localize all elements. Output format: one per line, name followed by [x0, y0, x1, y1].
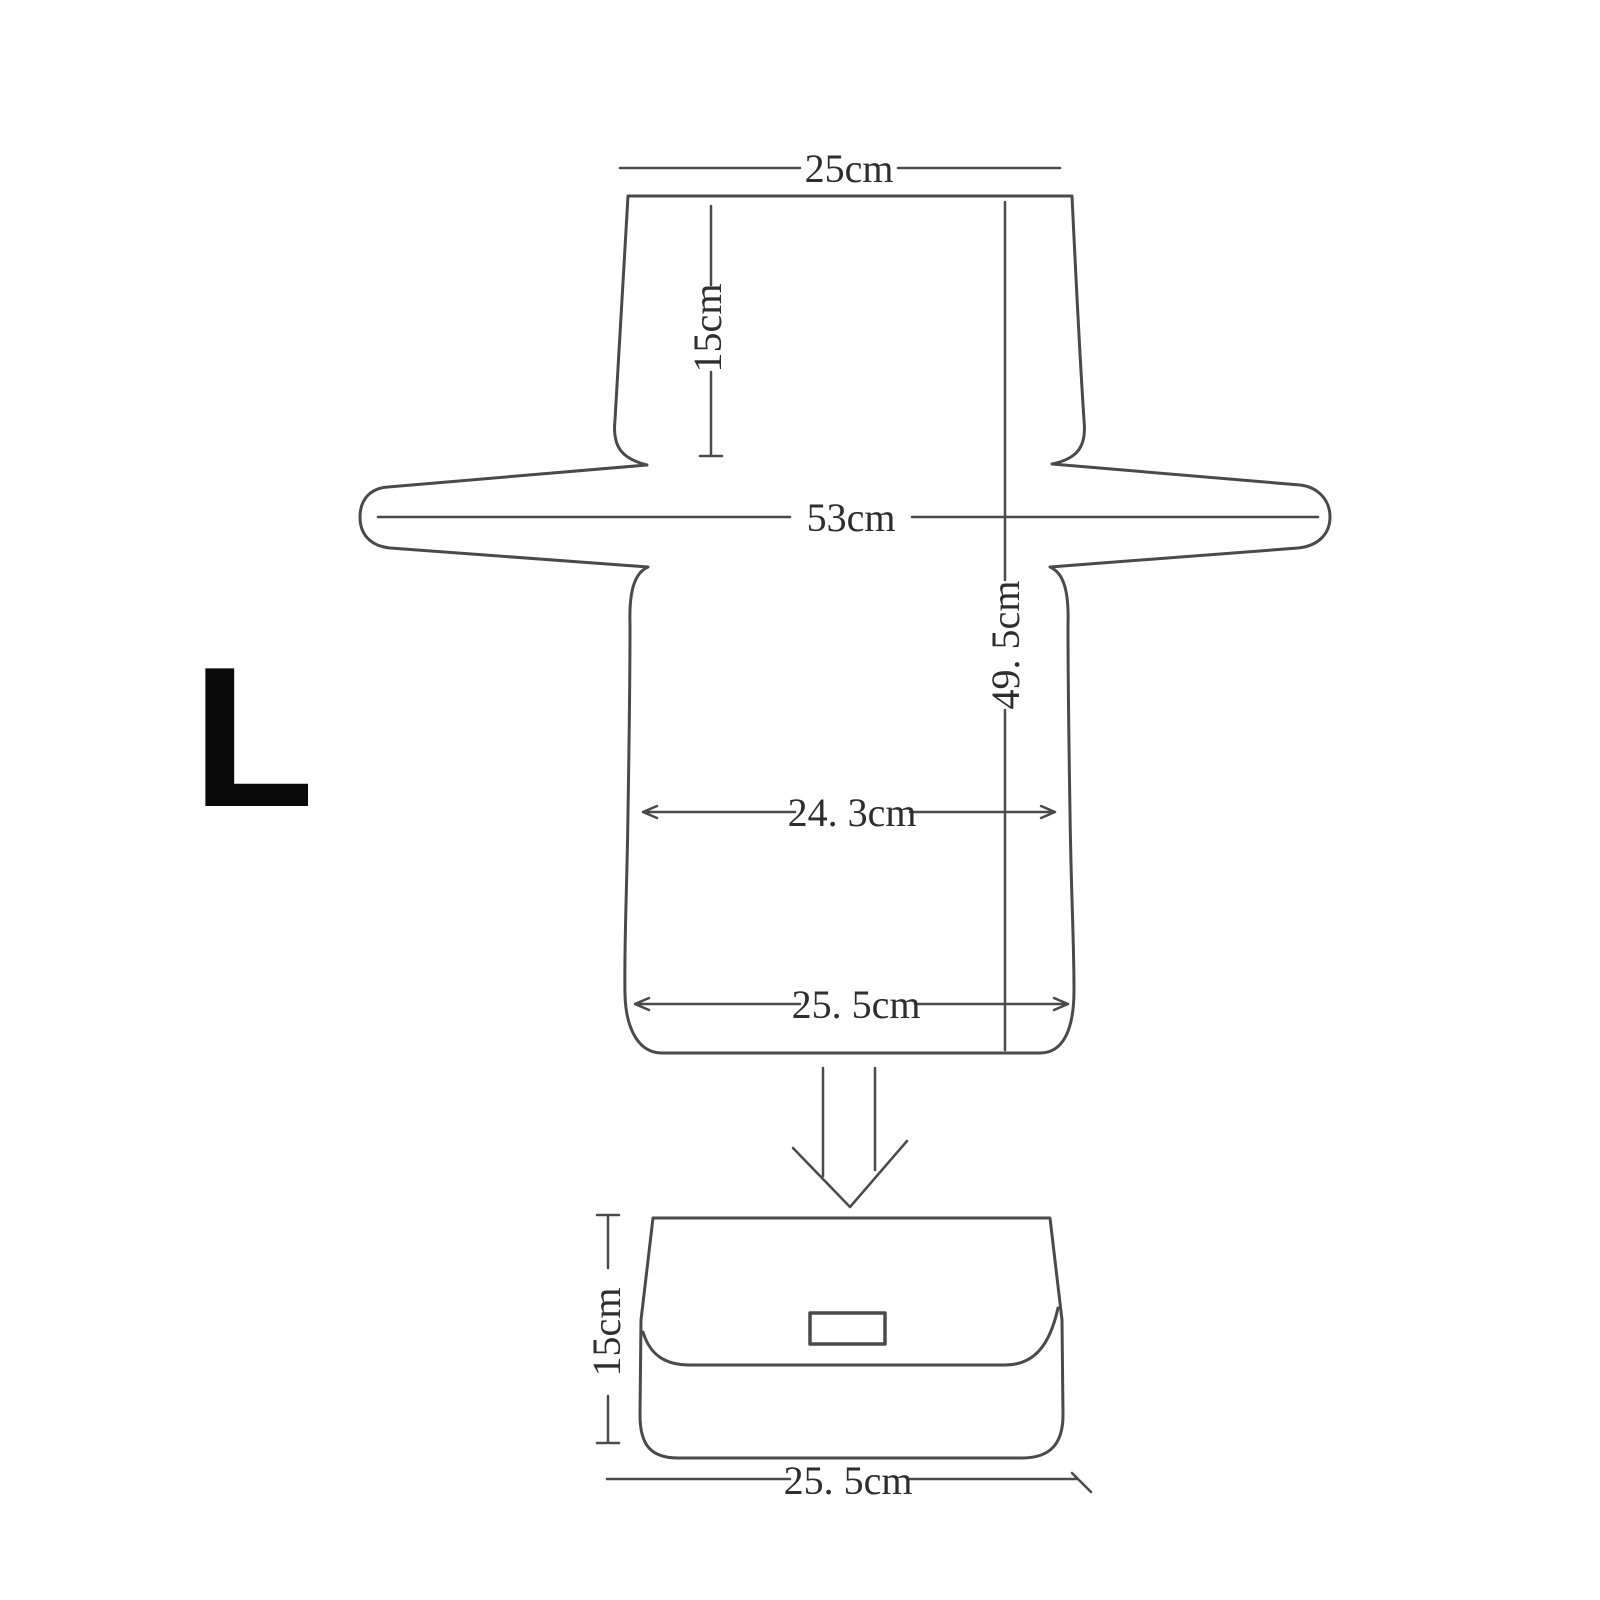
pattern-piece-outline	[360, 196, 1330, 1053]
label-bottom-width: 25. 5cm	[792, 982, 921, 1027]
label-bag-width: 25. 5cm	[784, 1458, 913, 1503]
size-label: L	[192, 626, 314, 849]
bag-clasp	[810, 1313, 885, 1344]
fold-arrow-icon	[793, 1068, 907, 1207]
label-bag-height: 15cm	[584, 1288, 629, 1377]
pattern-diagram: 25cm 15cm 53cm 49. 5cm 24. 3cm 25. 5cm 1…	[0, 0, 1600, 1600]
label-wing-span: 53cm	[807, 495, 896, 540]
label-upper-height: 15cm	[685, 284, 730, 373]
diagram-labels: 25cm 15cm 53cm 49. 5cm 24. 3cm 25. 5cm 1…	[584, 146, 1028, 1503]
pattern-diagram-canvas: 25cm 15cm 53cm 49. 5cm 24. 3cm 25. 5cm 1…	[0, 0, 1600, 1600]
label-total-height: 49. 5cm	[983, 581, 1028, 710]
label-middle-width: 24. 3cm	[788, 790, 917, 835]
label-top-width: 25cm	[805, 146, 894, 191]
